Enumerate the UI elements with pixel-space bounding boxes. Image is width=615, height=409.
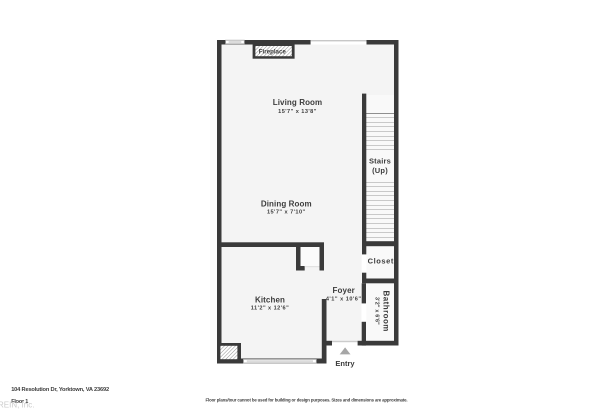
svg-text:11'2" x 12'6": 11'2" x 12'6" [251,305,289,311]
svg-text:Entry: Entry [335,359,355,368]
svg-text:(Up): (Up) [372,166,388,175]
svg-text:Closet: Closet [368,257,394,266]
svg-text:3'2" x 6'6": 3'2" x 6'6" [373,297,379,325]
svg-text:15'7" x 13'8": 15'7" x 13'8" [278,109,317,115]
svg-text:Kitchen: Kitchen [255,295,285,304]
svg-text:Bathroom: Bathroom [381,291,390,332]
svg-text:15'7" x 7'10": 15'7" x 7'10" [267,210,306,216]
svg-text:REIN, Inc.: REIN, Inc. [0,401,34,409]
svg-text:Dining Room: Dining Room [261,199,312,208]
svg-text:104 Resolution Dr, Yorktown, V: 104 Resolution Dr, Yorktown, VA 23692 [11,387,109,393]
svg-text:Fireplace: Fireplace [259,49,287,56]
svg-text:4'1" x 10'6": 4'1" x 10'6" [326,297,362,303]
svg-text:Living Room: Living Room [273,98,323,107]
svg-text:Stairs: Stairs [369,156,391,165]
svg-text:Floor plans/tour cannot be use: Floor plans/tour cannot be used for buil… [206,397,408,402]
svg-text:Foyer: Foyer [333,286,355,295]
